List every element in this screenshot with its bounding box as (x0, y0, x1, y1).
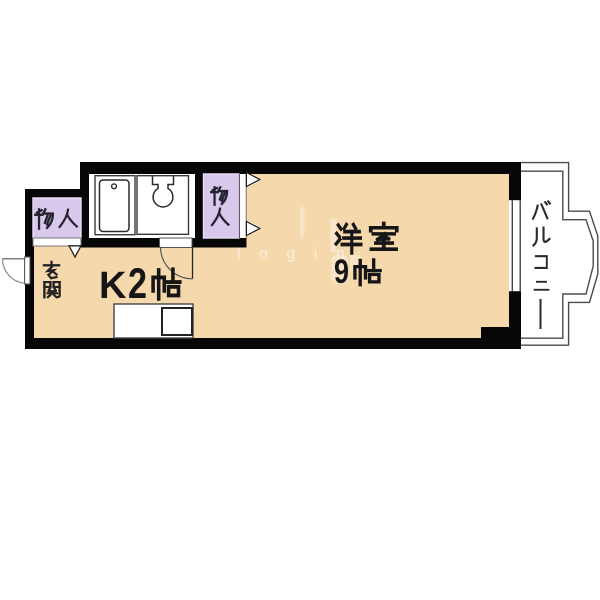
svg-text:2: 2 (128, 260, 147, 308)
svg-text:K: K (99, 265, 127, 307)
svg-text:9: 9 (334, 253, 349, 291)
